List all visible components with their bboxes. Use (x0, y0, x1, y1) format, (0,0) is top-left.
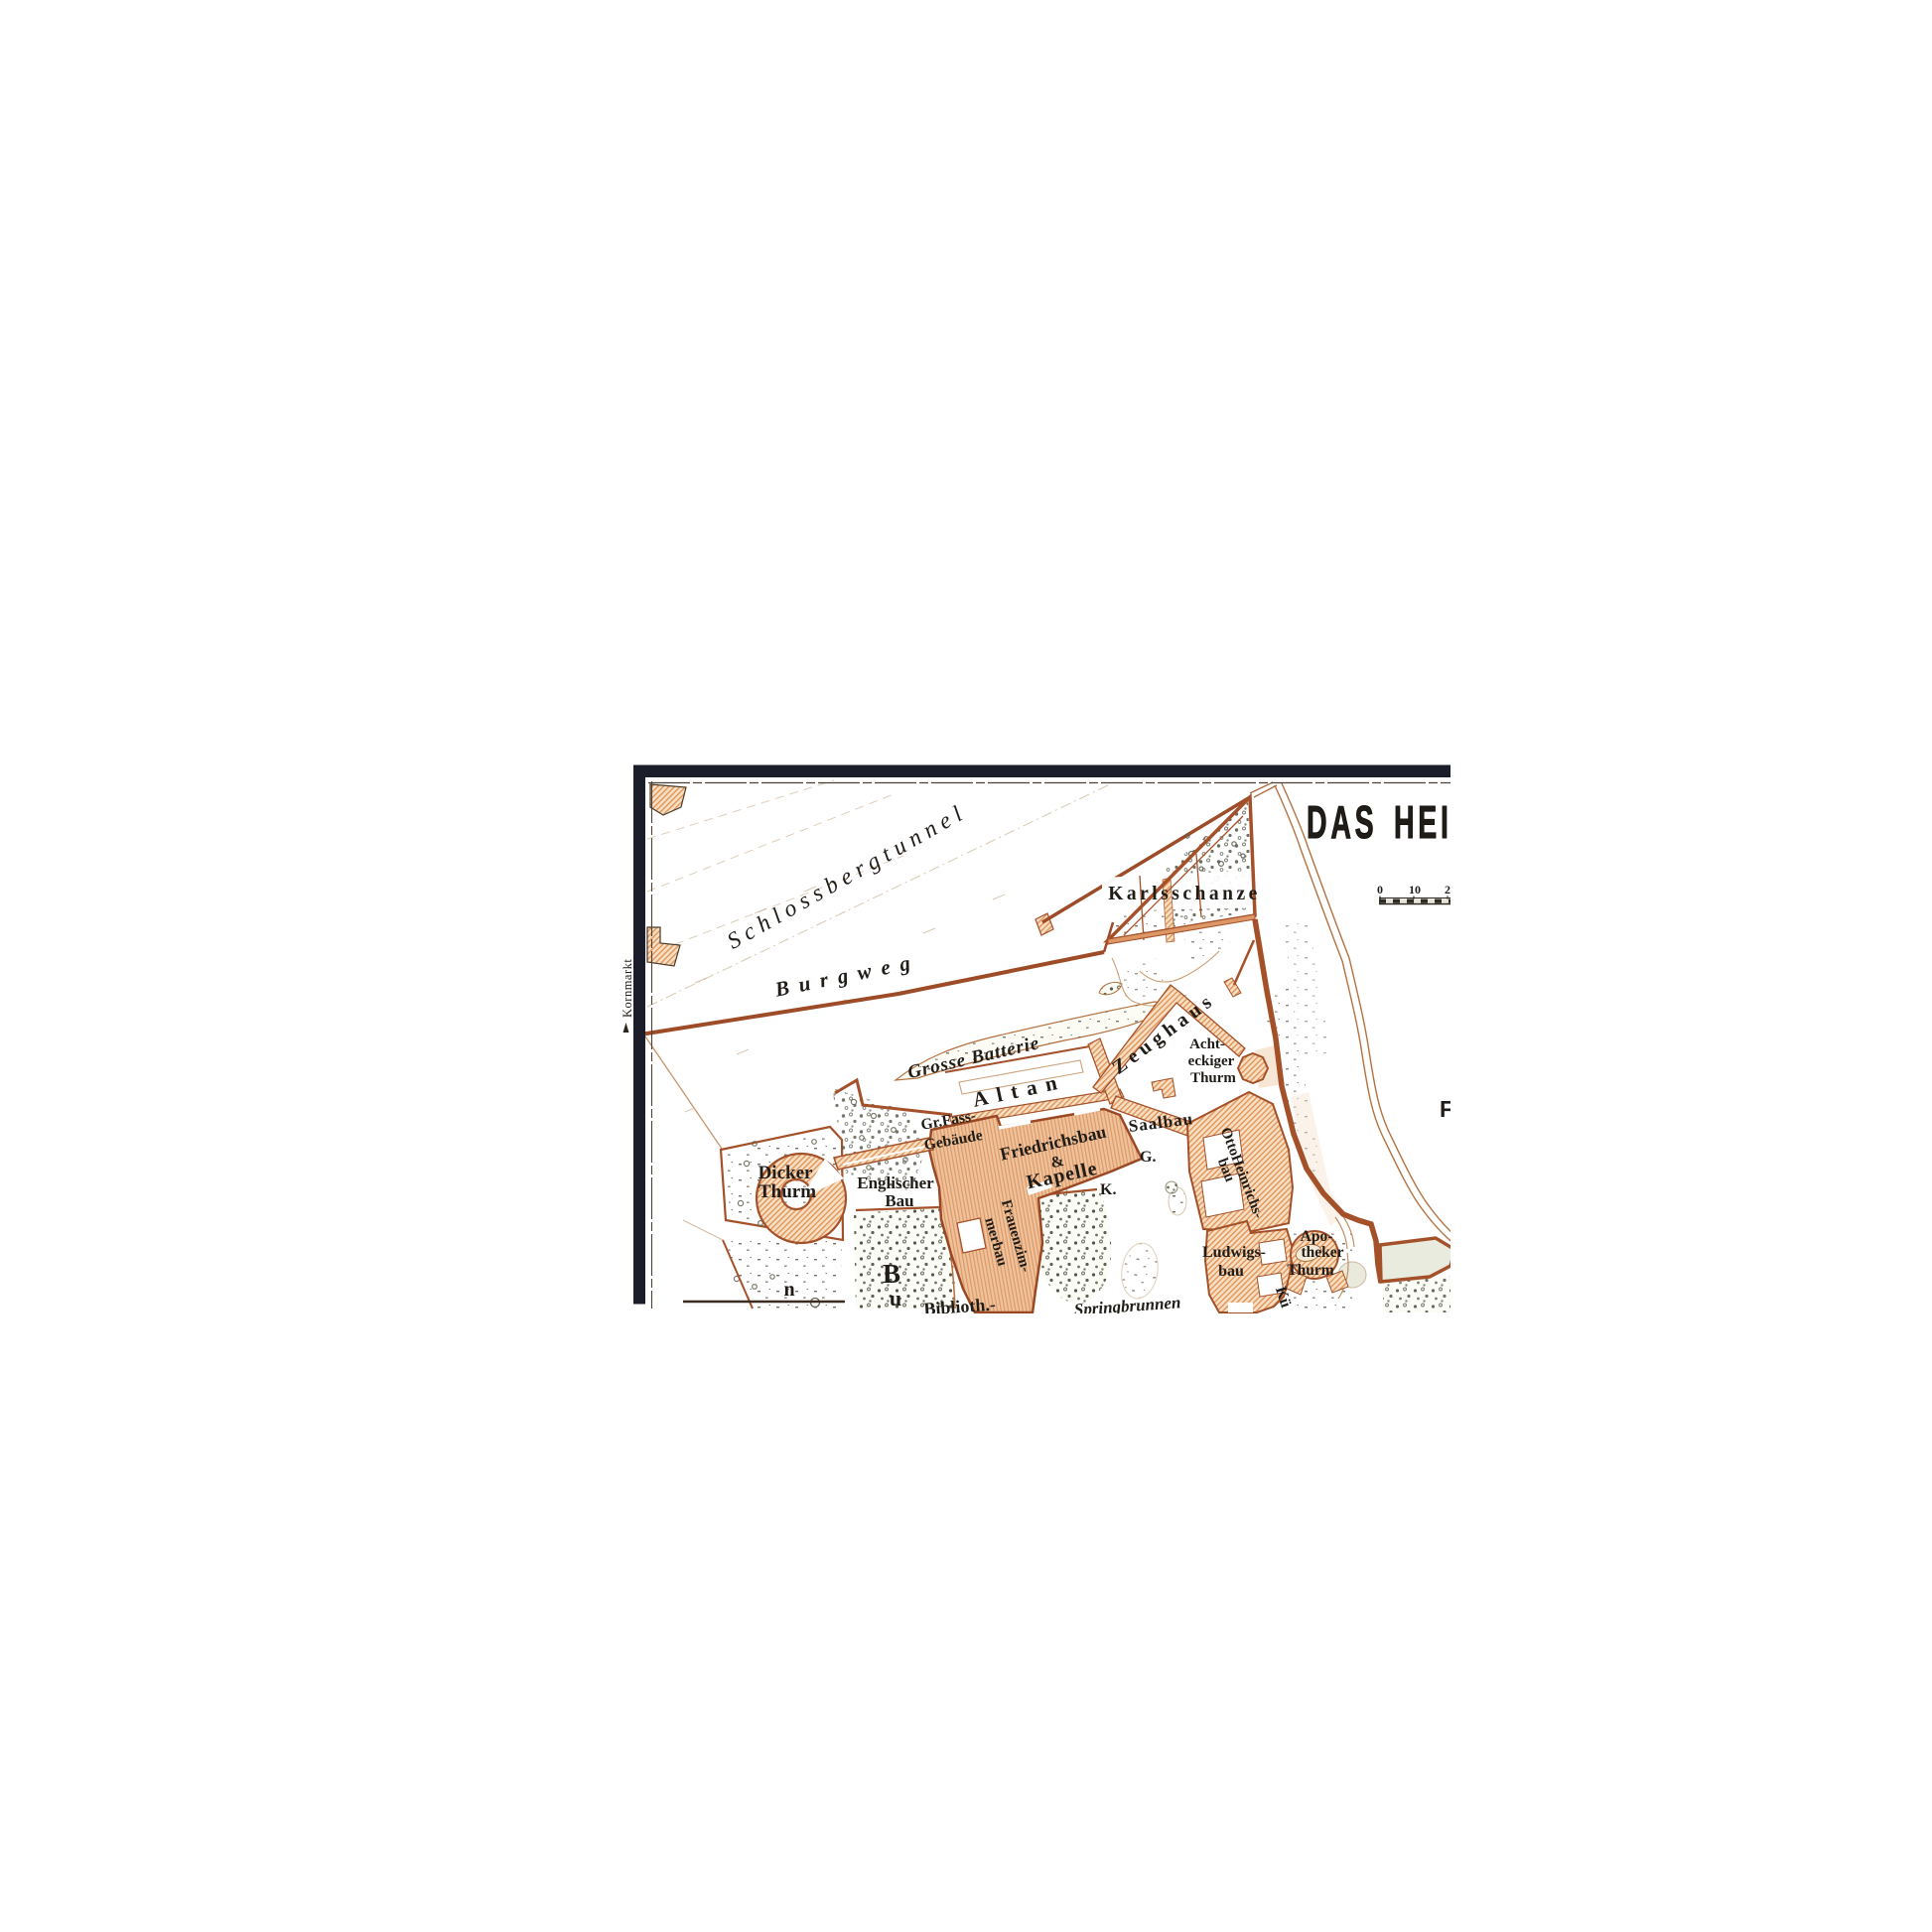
svg-text:Bau: Bau (885, 1191, 913, 1210)
svg-text:0: 0 (1377, 883, 1383, 897)
svg-text:n: n (783, 1279, 794, 1301)
svg-text:Biblioth.-: Biblioth.- (923, 1295, 997, 1319)
svg-text:Thurm: Thurm (759, 1181, 816, 1202)
svg-text:Thurm: Thurm (1287, 1262, 1333, 1279)
svg-text:Karlsschanze: Karlsschanze (1108, 884, 1261, 904)
svg-text:Dicker: Dicker (759, 1163, 813, 1183)
svg-text:K.: K. (1100, 1181, 1116, 1198)
svg-text:DAS HEI: DAS HEI (1307, 797, 1452, 849)
svg-text:eckiger: eckiger (1188, 1053, 1235, 1069)
svg-text:Thurm: Thurm (1190, 1070, 1236, 1086)
svg-text:2: 2 (1445, 883, 1450, 897)
svg-text:10: 10 (1409, 883, 1421, 897)
svg-text:G.: G. (1140, 1149, 1156, 1166)
svg-text:Kornmarkt: Kornmarkt (621, 959, 634, 1018)
svg-text:Acht-: Acht- (1189, 1036, 1225, 1052)
svg-text:F: F (1440, 1096, 1453, 1122)
svg-text:u: u (890, 1286, 901, 1311)
svg-text:B: B (883, 1259, 900, 1289)
svg-text:theker: theker (1301, 1244, 1343, 1261)
svg-text:Ludwigs-: Ludwigs- (1202, 1244, 1266, 1261)
svg-text:Apo-: Apo- (1301, 1228, 1333, 1245)
svg-text:bau: bau (1218, 1263, 1244, 1280)
svg-text:Englischer: Englischer (857, 1173, 934, 1192)
